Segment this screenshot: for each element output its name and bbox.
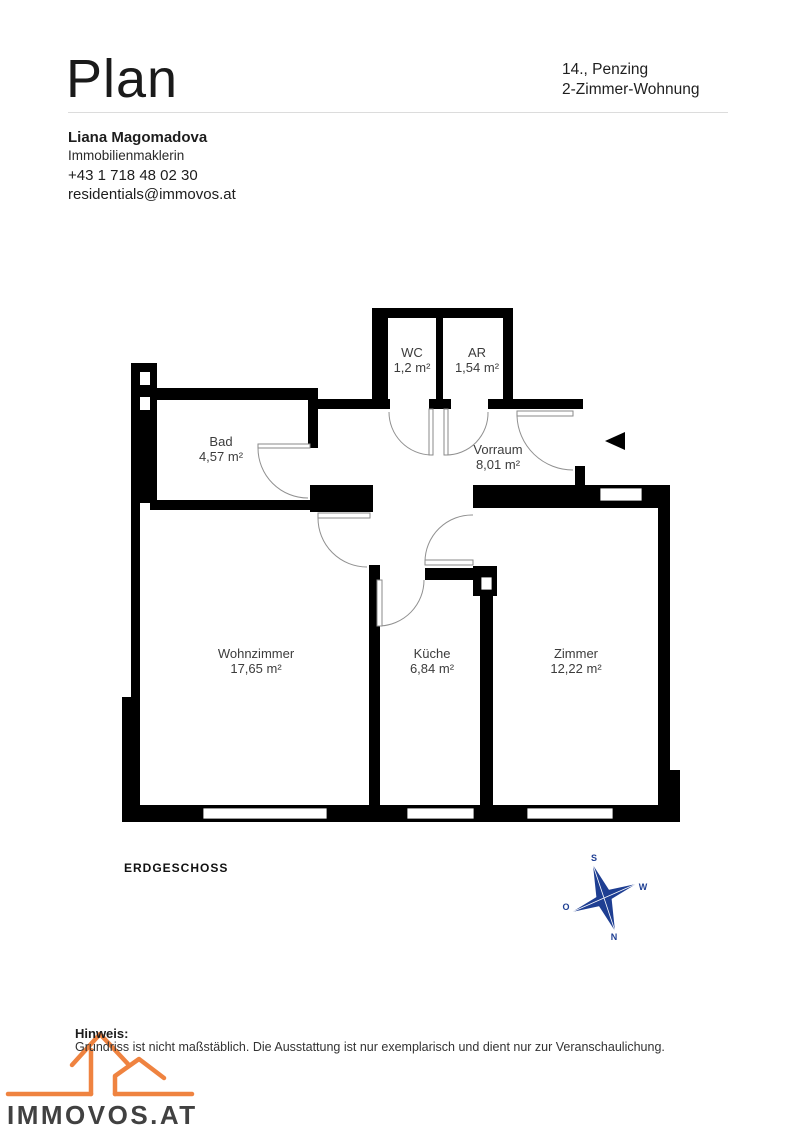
door-leaves bbox=[258, 409, 573, 626]
floor-label: ERDGESCHOSS bbox=[124, 861, 228, 875]
room-area-kueche: 6,84 m² bbox=[410, 661, 455, 676]
room-label-bad: Bad bbox=[209, 434, 232, 449]
room-area-bad: 4,57 m² bbox=[199, 449, 244, 464]
room-area-vorraum: 8,01 m² bbox=[476, 457, 521, 472]
compass-w: W bbox=[639, 882, 648, 892]
room-label-wc: WC bbox=[401, 345, 423, 360]
compass-s: S bbox=[591, 853, 597, 863]
floor-plan-page: Plan 14., Penzing 2-Zimmer-Wohnung Liana… bbox=[0, 0, 800, 1131]
note-text: Grundriss ist nicht maßstäblich. Die Aus… bbox=[75, 1040, 755, 1054]
floor-plan-drawing: WC 1,2 m² AR 1,54 m² Bad 4,57 m² Vorraum… bbox=[0, 0, 800, 1131]
room-label-wohnzimmer: Wohnzimmer bbox=[218, 646, 295, 661]
immovos-logo-text: IMMOVOS.AT bbox=[7, 1100, 198, 1131]
room-label-ar: AR bbox=[468, 345, 486, 360]
compass-o: O bbox=[562, 902, 569, 912]
room-label-vorraum: Vorraum bbox=[473, 442, 522, 457]
room-label-zimmer: Zimmer bbox=[554, 646, 599, 661]
compass-n: N bbox=[611, 932, 618, 942]
floorplan-walls bbox=[122, 308, 680, 822]
compass-rose-icon: S W O N bbox=[562, 853, 647, 942]
note-label: Hinweis: bbox=[75, 1026, 128, 1041]
entry-arrow-icon bbox=[605, 432, 625, 450]
room-area-ar: 1,54 m² bbox=[455, 360, 500, 375]
room-area-wc: 1,2 m² bbox=[394, 360, 432, 375]
room-label-kueche: Küche bbox=[414, 646, 451, 661]
room-area-wohnzimmer: 17,65 m² bbox=[230, 661, 282, 676]
room-area-zimmer: 12,22 m² bbox=[550, 661, 602, 676]
